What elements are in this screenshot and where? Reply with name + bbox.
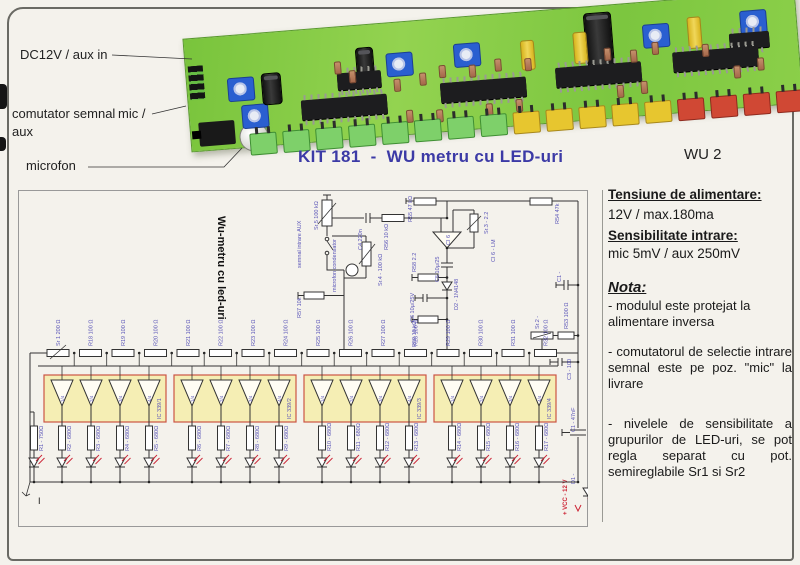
output-resistor-label: R17 - 680Ω bbox=[544, 423, 550, 451]
resistor-component bbox=[393, 78, 401, 92]
amp-label: 1/4 bbox=[320, 395, 325, 402]
ladder-label: R19 100 Ω bbox=[121, 320, 127, 346]
label-sr5: Sr.5 100 kΩ bbox=[314, 201, 320, 230]
label-r54: R54 47k bbox=[555, 203, 561, 224]
ic-chip bbox=[337, 70, 382, 90]
output-resistor bbox=[247, 426, 254, 450]
supply-title: Tensiune de alimentare: bbox=[608, 187, 762, 203]
led-row bbox=[183, 0, 793, 40]
label-sr2: Sr.2 - bbox=[535, 316, 541, 329]
amp-label: 4/4 bbox=[147, 395, 152, 402]
electrolytic-capacitor bbox=[260, 72, 283, 106]
output-resistor bbox=[59, 426, 66, 450]
ladder-resistor bbox=[437, 350, 459, 357]
pointer-line bbox=[112, 55, 192, 59]
small-components bbox=[183, 0, 793, 40]
label-c1b: C1 - 47nF bbox=[571, 407, 577, 432]
amp-label: 1/4 bbox=[60, 395, 65, 402]
output-resistor bbox=[146, 426, 153, 450]
notes-list: - modulul este protejat la alimentare in… bbox=[608, 298, 792, 494]
output-resistor-label: R16 - 680Ω bbox=[515, 423, 521, 451]
output-resistor bbox=[31, 426, 38, 450]
ladder-resistor bbox=[340, 350, 362, 357]
pcb-led bbox=[512, 110, 541, 134]
ground-arrow bbox=[22, 482, 30, 496]
kit-title: KIT 181 - WU metru cu LED-uri bbox=[298, 147, 563, 167]
resistor-component bbox=[604, 48, 612, 62]
ladder-label: R32 100 Ω bbox=[544, 320, 550, 346]
output-resistor-label: R11 - 680Ω bbox=[356, 423, 362, 451]
note-item: - comutatorul de selectie intrare semnal… bbox=[608, 344, 792, 392]
output-resistor-label: R7 - 680Ω bbox=[226, 426, 232, 451]
ladder-resistor bbox=[112, 350, 134, 357]
resistor-component bbox=[494, 58, 502, 72]
amp-label: 4/4 bbox=[407, 395, 412, 402]
ladder-resistor bbox=[372, 350, 394, 357]
label-ci6lm: CI 6 - LM bbox=[491, 239, 497, 262]
resistor-component bbox=[349, 70, 357, 84]
sensitivity-value: mic 5mV / aux 250mV bbox=[608, 246, 740, 262]
label-c5: C5 10μ/25 bbox=[435, 257, 441, 283]
amp-label: 2/4 bbox=[479, 395, 484, 402]
output-resistor bbox=[218, 426, 225, 450]
label-r53: R53 100 Ω bbox=[564, 303, 570, 329]
resistor-component bbox=[524, 58, 532, 72]
resistor-component bbox=[334, 61, 342, 75]
resistor-r59 bbox=[418, 316, 438, 323]
resistor-component bbox=[419, 72, 427, 86]
label-c3: C3 - 100 bbox=[567, 359, 573, 380]
output-resistor bbox=[536, 426, 543, 450]
switch-contact bbox=[325, 237, 329, 241]
resistor-component bbox=[617, 85, 625, 99]
ladder-label: R30 100 Ω bbox=[479, 320, 485, 346]
amp-label: 3/4 bbox=[248, 395, 253, 402]
comparator-groups: IC 339/11/42/43/44/4IC 339/21/42/43/44/4… bbox=[44, 366, 556, 422]
pin-header bbox=[188, 65, 206, 100]
label-c6: C6 10μ/25V bbox=[410, 293, 416, 322]
output-resistor-label: R6 - 680Ω bbox=[197, 426, 203, 451]
output-resistor bbox=[88, 426, 95, 450]
resistor-r55 bbox=[414, 198, 436, 205]
note-item: - nivelele de sensibilitate a grupurilor… bbox=[608, 416, 792, 480]
label-microfon: microfon bbox=[26, 158, 76, 173]
diode-d2 bbox=[442, 282, 452, 290]
amp-label: 2/4 bbox=[219, 395, 224, 402]
output-resistor bbox=[189, 426, 196, 450]
scan-artifact bbox=[0, 137, 6, 151]
output-resistor-label: R8 - 680Ω bbox=[255, 426, 261, 451]
schematic-border bbox=[19, 191, 588, 527]
label-r58: R58 2.2 bbox=[412, 253, 418, 272]
ic-chip bbox=[672, 46, 759, 73]
ladder-resistor bbox=[210, 350, 232, 357]
pcb-led bbox=[480, 113, 509, 137]
note-item: - modulul este protejat la alimentare in… bbox=[608, 298, 792, 330]
resistor-component bbox=[733, 65, 741, 79]
pcb-led bbox=[776, 89, 800, 113]
diode-d1 bbox=[583, 488, 588, 496]
ic-label: IC 339/1 bbox=[157, 398, 163, 419]
supply-value: 12V / max.180ma bbox=[608, 207, 714, 223]
ladder-resistor bbox=[47, 350, 69, 357]
pcb-led bbox=[447, 116, 476, 140]
output-resistor bbox=[348, 426, 355, 450]
resistor-component bbox=[468, 64, 476, 78]
amp-label: 3/4 bbox=[118, 395, 123, 402]
scan-artifact bbox=[0, 84, 7, 109]
output-resistor-label: R1 - 750Ω bbox=[39, 426, 45, 451]
output-resistor bbox=[478, 426, 485, 450]
output-resistor-label: R4 - 680Ω bbox=[125, 426, 131, 451]
ladder-resistors: Sr 1 200 ΩR18 100 ΩR19 100 ΩR20 100 ΩR21… bbox=[47, 320, 557, 366]
resistor-component bbox=[757, 57, 765, 71]
output-resistor-label: R2 - 680Ω bbox=[67, 426, 73, 451]
output-resistor bbox=[406, 426, 413, 450]
pcb-led bbox=[743, 92, 772, 116]
resistor-r53 bbox=[558, 332, 574, 339]
ladder-label: R18 100 Ω bbox=[89, 320, 95, 346]
pcb-led bbox=[710, 95, 739, 119]
pointer-line bbox=[152, 106, 186, 114]
ladder-label: R22 100 Ω bbox=[219, 320, 225, 346]
ic-label: IC 339/4 bbox=[547, 398, 553, 419]
output-resistor bbox=[319, 426, 326, 450]
sensitivity-title: Sensibilitate intrare: bbox=[608, 228, 738, 244]
amp-label: 4/4 bbox=[277, 395, 282, 402]
label-sr3: Sr.3 - 2.2 bbox=[484, 212, 490, 234]
output-resistor bbox=[507, 426, 514, 450]
ladder-label: R31 100 Ω bbox=[511, 320, 517, 346]
resistor-component bbox=[702, 44, 710, 58]
ladder-resistor bbox=[145, 350, 167, 357]
trimmer-pot bbox=[385, 51, 414, 77]
label-semnal: semnal intrare AUX bbox=[297, 220, 303, 268]
ladder-label: R29 100 Ω bbox=[446, 320, 452, 346]
nota-title: Nota: bbox=[608, 280, 646, 296]
ladder-label: R20 100 Ω bbox=[154, 320, 160, 346]
ladder-label: R23 100 Ω bbox=[251, 320, 257, 346]
label-comutator: comutator semnal bbox=[12, 106, 115, 121]
ladder-resistor bbox=[80, 350, 102, 357]
resistor-component bbox=[640, 81, 648, 95]
ladder-label: R24 100 Ω bbox=[284, 320, 290, 346]
ladder-label: R27 100 Ω bbox=[381, 320, 387, 346]
trimmer-pot bbox=[241, 103, 270, 129]
ic-chip bbox=[301, 94, 388, 121]
output-resistor bbox=[377, 426, 384, 450]
resistor-r57 bbox=[304, 292, 324, 299]
output-resistor-label: R14 - 680Ω bbox=[457, 423, 463, 451]
pcb-led bbox=[249, 132, 278, 156]
output-resistor-label: R9 - 680Ω bbox=[284, 426, 290, 451]
pointer-line bbox=[88, 148, 242, 167]
label-ci6: CI 6 bbox=[446, 235, 452, 245]
output-resistor-label: R10 - 680Ω bbox=[327, 423, 333, 451]
label-sr4: Sr.4 - 100 kΩ bbox=[378, 254, 384, 286]
ic-chip bbox=[555, 61, 642, 88]
board-name: WU 2 bbox=[684, 146, 722, 163]
switch-contact bbox=[325, 251, 329, 255]
amp-label: 2/4 bbox=[89, 395, 94, 402]
pcb-board bbox=[182, 0, 800, 152]
ladder-label: R21 100 Ω bbox=[186, 320, 192, 346]
amp-label: 1/4 bbox=[450, 395, 455, 402]
microphone-symbol bbox=[346, 264, 358, 276]
resistor-component bbox=[438, 65, 446, 79]
label-vcc: + VCC - 12 V bbox=[563, 479, 569, 515]
ladder-resistor bbox=[405, 350, 427, 357]
ladder-label: R26 100 Ω bbox=[349, 320, 355, 346]
label-microfon: microfon condensator bbox=[332, 239, 338, 292]
ladder-resistor bbox=[470, 350, 492, 357]
resistor-r56 bbox=[382, 215, 404, 222]
output-resistor-label: R15 - 680Ω bbox=[486, 423, 492, 451]
output-resistor-label: R5 - 680Ω bbox=[154, 426, 160, 451]
amp-label: 3/4 bbox=[508, 395, 513, 402]
pcb-led bbox=[545, 108, 574, 132]
label-r56: R56 10 kΩ bbox=[384, 224, 390, 250]
signal-switch bbox=[198, 120, 236, 147]
ic-chip bbox=[440, 76, 527, 103]
output-resistor-label: R13 - 680Ω bbox=[414, 423, 420, 451]
amp-label: 1/4 bbox=[190, 395, 195, 402]
label-c1a: C1 - bbox=[557, 271, 563, 282]
resistor-r54 bbox=[530, 198, 552, 205]
ground-label: I bbox=[38, 496, 41, 506]
pcb-led bbox=[414, 118, 443, 142]
ic-label: IC 339/3 bbox=[417, 398, 423, 419]
pcb-led bbox=[578, 105, 607, 129]
ladder-resistor bbox=[307, 350, 329, 357]
label-mic-aux: mic / bbox=[118, 106, 145, 121]
label-r57: R57 10k bbox=[297, 297, 303, 318]
label-aux: aux bbox=[12, 124, 33, 139]
pcb-led bbox=[677, 97, 706, 121]
resistor-component bbox=[651, 42, 659, 56]
output-resistor bbox=[276, 426, 283, 450]
ladder-resistor bbox=[275, 350, 297, 357]
label-dc12v: DC12V / aux in bbox=[20, 47, 107, 62]
label-c4: C4 220n bbox=[358, 229, 364, 250]
output-resistor-label: R12 - 680Ω bbox=[385, 423, 391, 451]
trimmer-pot bbox=[453, 42, 482, 68]
pcb-led bbox=[644, 100, 673, 124]
ladder-resistor bbox=[535, 350, 557, 357]
ladder-label: Sr 1 200 Ω bbox=[56, 320, 62, 346]
schematic: Wu-metru cu led-uri bbox=[18, 190, 588, 527]
amp-label: 2/4 bbox=[349, 395, 354, 402]
resistor-component bbox=[630, 49, 638, 63]
panel-divider bbox=[602, 190, 603, 522]
ladder-resistor bbox=[242, 350, 264, 357]
label-r55: R55 47 kΩ bbox=[408, 196, 414, 222]
ladder-resistor bbox=[502, 350, 524, 357]
ladder-resistor bbox=[177, 350, 199, 357]
pcb-led bbox=[381, 121, 410, 145]
amp-label: 3/4 bbox=[378, 395, 383, 402]
scanned-page: DC12V / aux in comutator semnal mic / au… bbox=[0, 0, 800, 565]
trimmer-pot bbox=[227, 76, 256, 102]
label-d2: D2 - 1N4148 bbox=[454, 279, 460, 310]
vcc-terminal bbox=[575, 505, 581, 511]
pcb-led bbox=[611, 102, 640, 126]
output-resistor bbox=[117, 426, 124, 450]
schematic-title: Wu-metru cu led-uri bbox=[215, 216, 227, 320]
output-resistor-label: R3 - 680Ω bbox=[96, 426, 102, 451]
ladder-label: R28 100 Ω bbox=[414, 320, 420, 346]
amp-label: 4/4 bbox=[537, 395, 542, 402]
ladder-label: R25 100 Ω bbox=[316, 320, 322, 346]
output-resistor bbox=[449, 426, 456, 450]
ic-label: IC 339/2 bbox=[287, 398, 293, 419]
pcb-led bbox=[348, 124, 377, 148]
